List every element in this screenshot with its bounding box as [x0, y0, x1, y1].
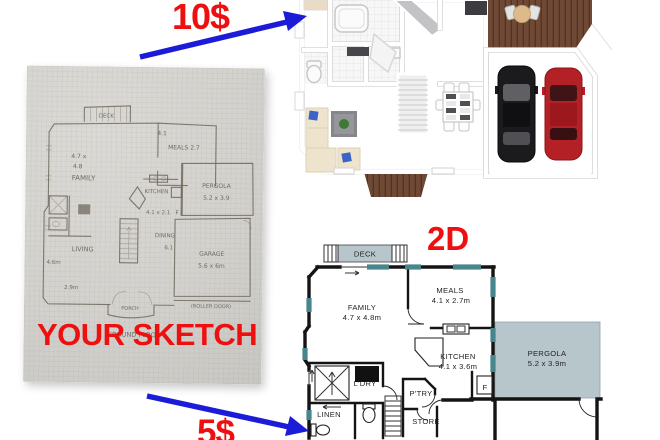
sketch-label-family-d1: 4.7 x: [71, 153, 87, 160]
room-label-linen: LINEN: [317, 410, 341, 419]
sketch-label-meals: MEALS 2.7: [168, 144, 200, 151]
room-label-store: STORE: [412, 417, 440, 426]
sketch-label-family-d2: 4.8: [73, 163, 83, 170]
kitchen-appliance: [464, 0, 488, 16]
plan-2d-caption: 2D: [427, 220, 469, 258]
promo-canvas: 10$ 5$ YOUR SKETCH 2D: [0, 0, 660, 440]
sketch-label-deck: DECK: [99, 113, 115, 119]
sketch-label-living: LIVING: [72, 245, 94, 253]
room-dims-family: 4.7 x 4.8m: [343, 313, 381, 322]
sketch-label-family: FAMILY: [72, 174, 96, 182]
window-left-1: [295, 22, 304, 38]
garage-opening: [490, 172, 591, 178]
window-bottom-2: [432, 168, 454, 174]
pillow-blue-2: [341, 152, 351, 162]
room-dims-pergola: 5.2 x 3.9m: [528, 359, 566, 368]
car-black: [495, 66, 538, 162]
price-3d-label: 10$: [172, 0, 229, 38]
room-dims-meals: 4.1 x 2.7m: [432, 296, 470, 305]
price-2d-label: 5$: [197, 413, 234, 440]
staircase-2d: [385, 396, 401, 436]
window-left-2: [295, 92, 304, 110]
toilet-2d-b: [311, 424, 330, 436]
your-sketch-caption: YOUR SKETCH: [37, 317, 257, 353]
sketch-label-kitchen: KITCHEN: [144, 189, 168, 195]
room-label-ptry: P'TRY: [409, 389, 432, 398]
room-label-deck: DECK: [354, 250, 376, 259]
dining-set: [436, 83, 480, 131]
room-label-family: FAMILY: [348, 303, 376, 312]
car-red: [542, 68, 585, 160]
sketch-label-dining: DINING: [155, 233, 175, 239]
sketch-label-kitchen-dims: 4.1 x 2.1: [146, 210, 170, 216]
staircase-3d: [398, 74, 428, 134]
floorplan-3d-render: [290, 0, 660, 200]
deck-table: [514, 6, 531, 23]
floorplan-2d: DECK FAMILY 4.7 x 4.8m MEALS 4.1 x 2.7m …: [295, 220, 660, 440]
toilet-2d: [363, 404, 375, 423]
plant: [339, 119, 349, 129]
room-dims-kitchen: 4.1 x 3.6m: [439, 362, 477, 371]
window-bottom-1: [334, 168, 354, 174]
sketch-label-living-d: 2.9m: [64, 285, 78, 291]
sketch-label-pergola: PERGOLA: [202, 183, 232, 190]
sketch-label-porch: PORCH: [121, 306, 139, 312]
sketch-label-garage-dims: 5.6 x 6m: [198, 263, 225, 270]
room-label-fridge: F: [483, 383, 488, 392]
sketch-label-dining-d: 6.1: [164, 245, 173, 251]
vanity-counter: [347, 47, 369, 56]
toilet: [307, 61, 321, 83]
living-area-3d: [306, 108, 360, 172]
sketch-label-meals-w: 4.1: [157, 130, 167, 137]
sketch-label-roller-door: (ROLLER DOOR): [191, 304, 231, 310]
sketch-label-living-w: 4.6m: [46, 260, 60, 266]
room-label-meals: MEALS: [436, 286, 463, 295]
rear-deck: [488, 0, 592, 48]
pillow-blue: [308, 110, 318, 120]
room-label-ldry: L'DRY: [353, 379, 376, 388]
sketch-label-pergola-dims: 5.2 x 3.9: [203, 195, 230, 202]
front-deck: [364, 172, 428, 197]
sketch-label-kitchen-f: F: [176, 210, 179, 216]
room-label-kitchen: KITCHEN: [440, 352, 475, 361]
sketch-label-garage: GARAGE: [199, 251, 224, 258]
room-label-pergola: PERGOLA: [528, 349, 567, 358]
